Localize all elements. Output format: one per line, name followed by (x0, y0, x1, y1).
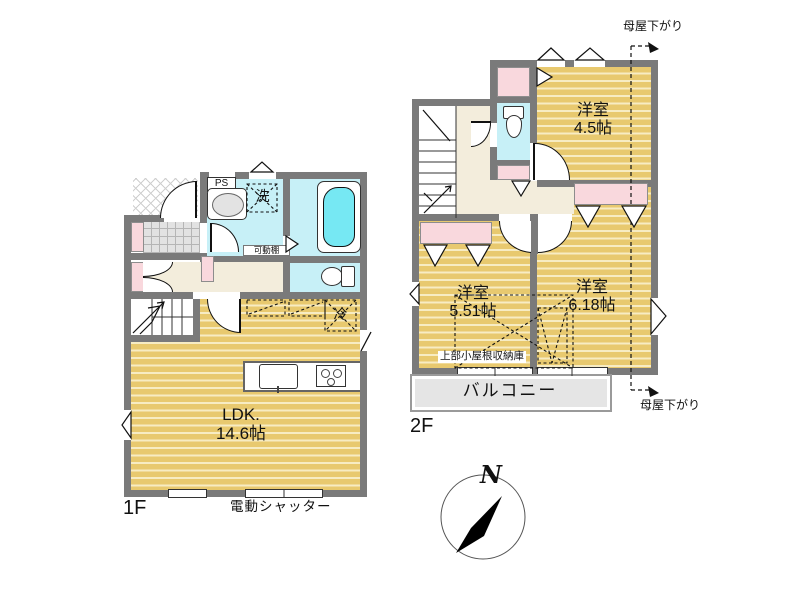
ldk-size: 14.6帖 (216, 424, 266, 443)
closet-triangle-618-a (576, 206, 600, 227)
room45-label: 洋室 4.5帖 (550, 102, 636, 138)
stair-arrow-1f (133, 302, 164, 334)
ldk-name: LDK. (222, 405, 260, 424)
closet-triangle-618-b (622, 206, 646, 227)
floor-plan-canvas: PS 洗 可動棚 冷 LDK. 14.6帖 洋室 4.5帖 洋室 5.51帖 洋… (0, 0, 800, 600)
vent-triangle-left-1f (122, 412, 131, 438)
floor1-label: 1F (123, 497, 146, 519)
washer-label: 洗 (249, 189, 276, 205)
vent-triangle-right-room45 (537, 68, 552, 86)
fridge-label: 冷 (327, 307, 354, 323)
compass-north-label: N (480, 462, 502, 489)
roof-arrow-bottom (648, 386, 659, 397)
room551-size: 5.51帖 (449, 303, 496, 320)
room45-size: 4.5帖 (574, 120, 612, 137)
ldk-label: LDK. 14.6帖 (200, 405, 282, 443)
attic-storage-label: 上部小屋根収納庫 (438, 351, 526, 363)
symbol-overlay (0, 0, 800, 600)
roof-note-bottom: 母屋下がり (640, 399, 700, 412)
back-door-stroke (361, 332, 371, 351)
stair-treads-2f (419, 106, 456, 218)
closet-triangle-hall (512, 181, 530, 196)
movable-shelf-label: 可動棚 (243, 246, 290, 256)
closet-triangle-551-b (466, 245, 490, 266)
vent-triangle-right-2f (651, 299, 666, 334)
ps-label: PS (207, 178, 236, 189)
room551-name: 洋室 (457, 285, 489, 302)
shutter-label: 電動シャッター (230, 499, 332, 514)
room618-size: 6.18帖 (568, 297, 615, 314)
roof-note-top: 母屋下がり (623, 20, 683, 33)
room45-name: 洋室 (577, 102, 609, 119)
roof-arrow-top (648, 42, 659, 53)
stair-treads-1f (152, 299, 193, 335)
room618-label: 洋室 6.18帖 (549, 279, 635, 315)
floor2-label: 2F (410, 415, 433, 437)
vent-triangle-up-2f-a (538, 48, 564, 60)
balcony-label: バルコニー (430, 381, 590, 400)
vent-triangle-left-2f (410, 284, 419, 304)
room551-label: 洋室 5.51帖 (430, 285, 516, 321)
room618-name: 洋室 (576, 279, 608, 296)
vent-triangle-up-2f-b (576, 48, 604, 60)
vent-triangle-up-1f (251, 162, 273, 172)
closet-triangle-551-a (424, 245, 447, 266)
